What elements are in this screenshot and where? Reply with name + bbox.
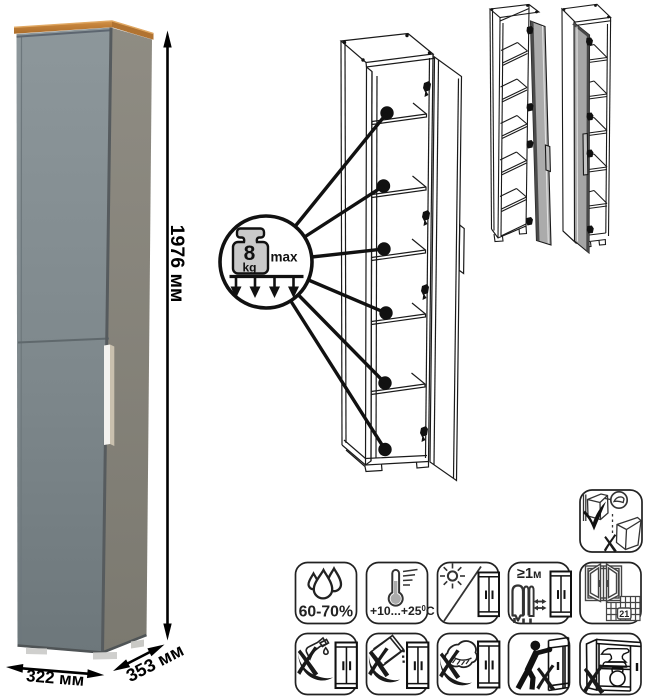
svg-text:max: max — [270, 250, 298, 265]
svg-text:60-70%: 60-70% — [299, 604, 353, 621]
svg-text:21: 21 — [619, 609, 629, 619]
svg-text:kg: kg — [242, 261, 256, 275]
svg-text:322 мм: 322 мм — [25, 666, 85, 690]
svg-text:1976 мм: 1976 мм — [166, 225, 188, 303]
svg-text:≥1м: ≥1м — [517, 566, 542, 582]
svg-text:+10...+250C: +10...+250C — [370, 604, 435, 618]
